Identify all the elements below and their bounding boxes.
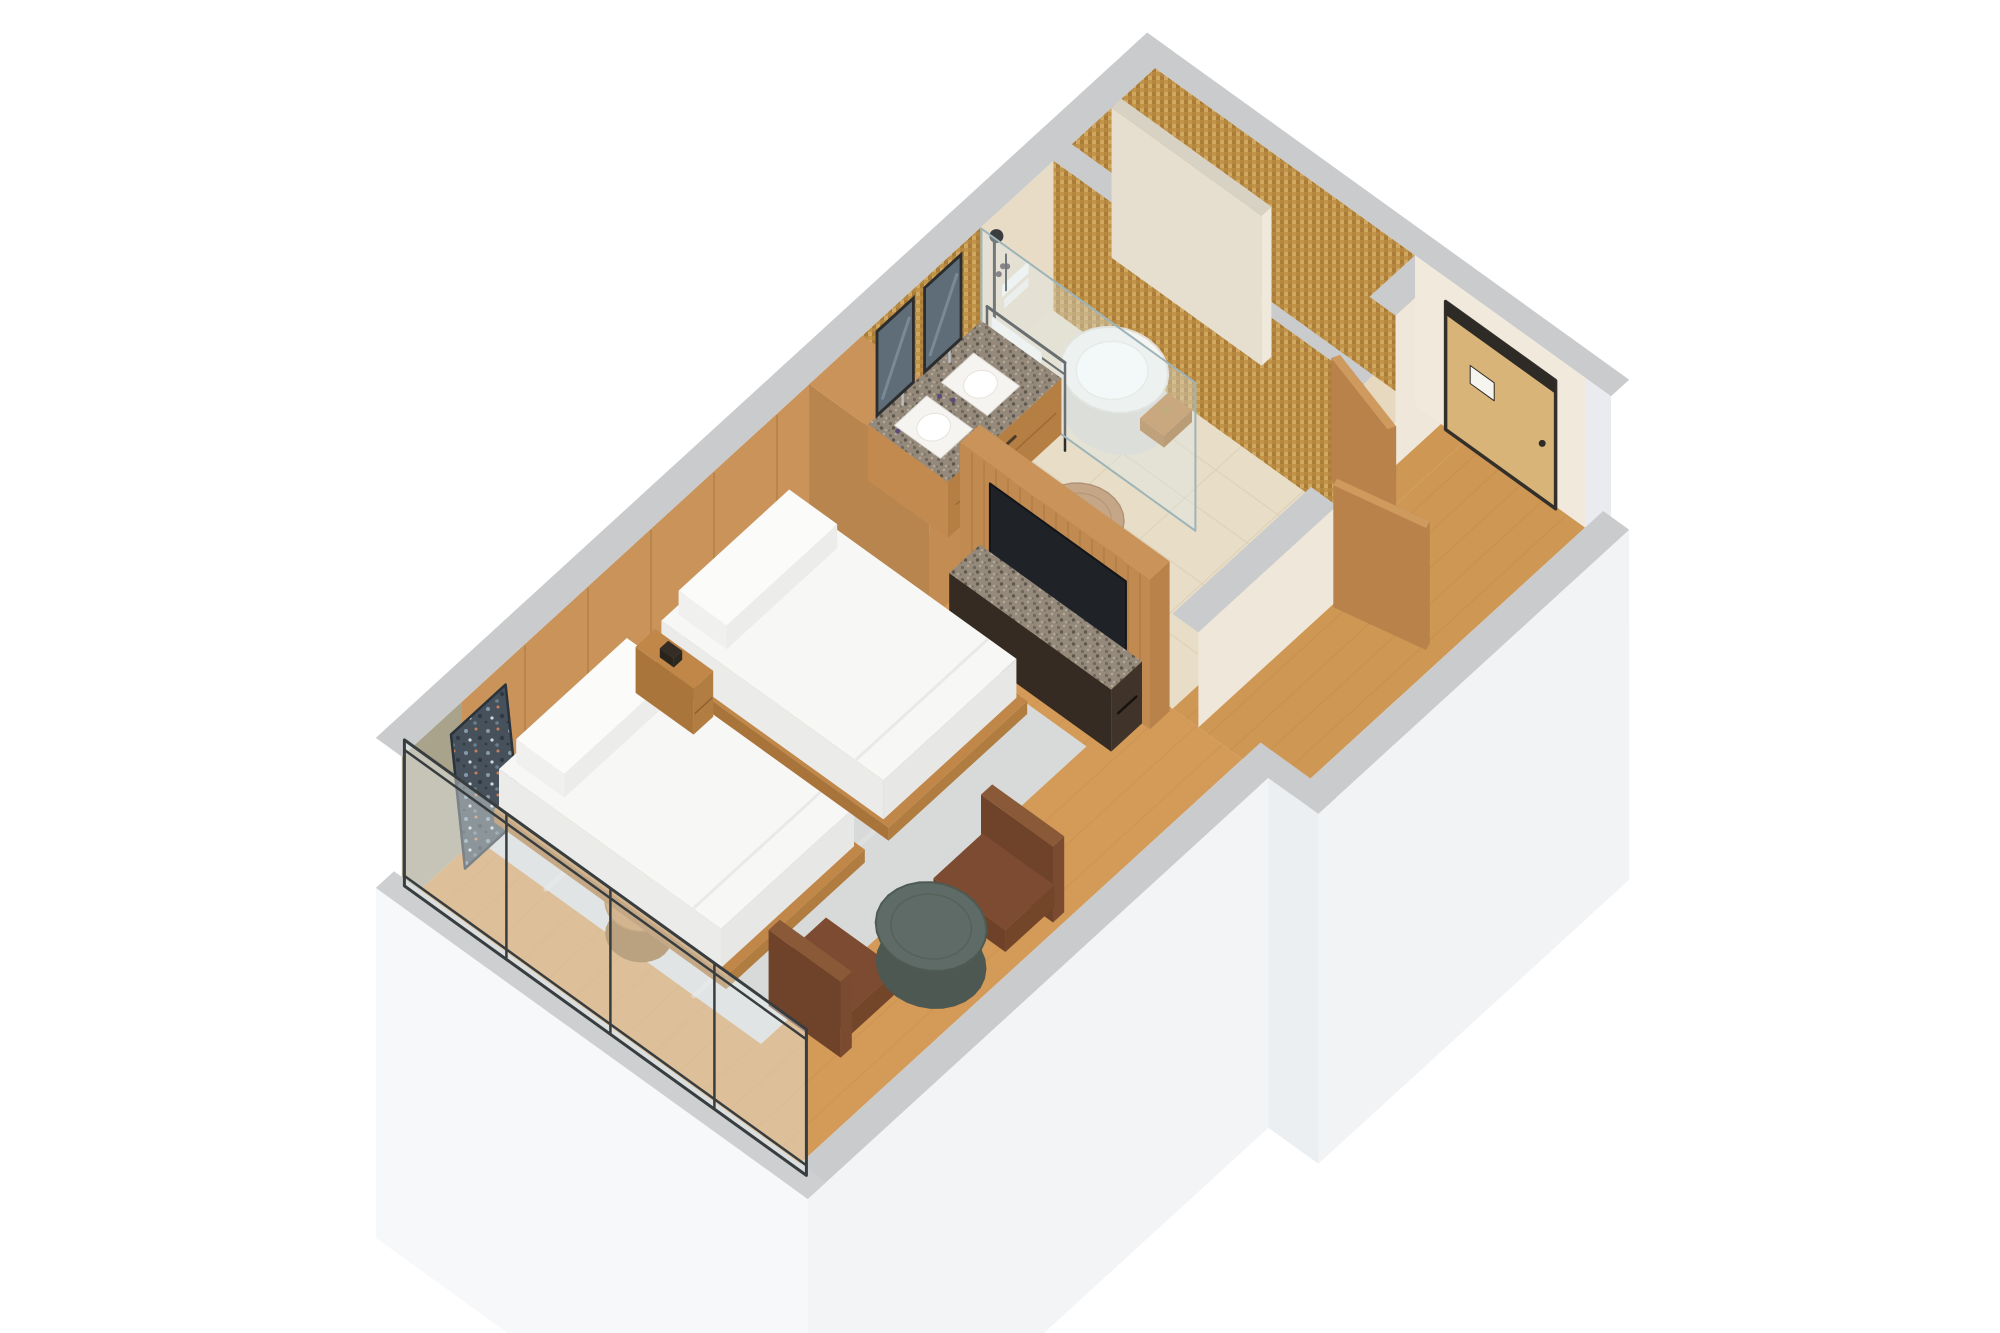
bathroom-door-leaf-side-face [1333,479,1337,608]
amenity-bottles [951,398,956,403]
floorplan-svg [0,0,2000,1333]
amenity-bottles [895,429,900,434]
skirt-jog [1268,778,1318,1164]
tv-partition-front-face [1150,561,1170,729]
bathroom-door-leaf-side-face [1426,521,1430,650]
chair-1-back-front-face [841,972,852,1058]
entry-door-handle [1539,440,1546,447]
amenity-bottles [937,394,942,399]
closet-divider-front-face [1262,207,1272,366]
chair-2-back-front-face [1053,836,1064,922]
screenshot-root [0,0,2000,1333]
closet-door-leaf-side-face [1331,355,1340,480]
